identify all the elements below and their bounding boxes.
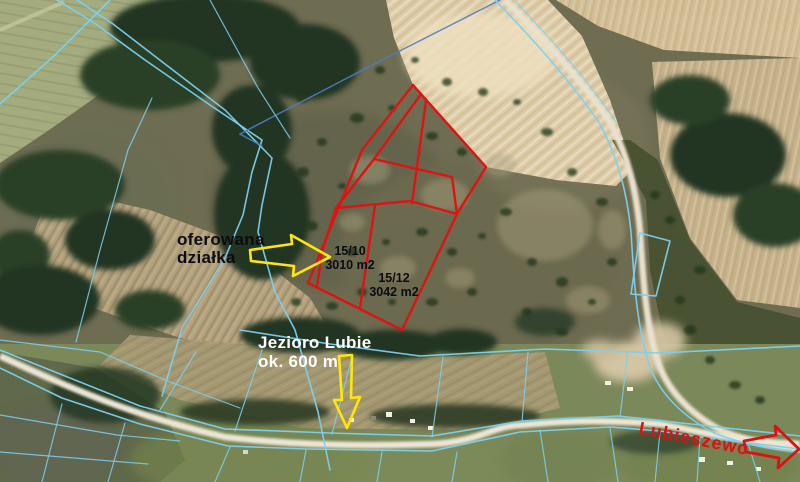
satellite-map-canvas [0,0,800,482]
lake-distance: ok. 600 m [258,353,371,372]
offered-plot-label-line2: działka [177,249,265,267]
parcel-15-10-area: 3010 m2 [318,259,382,273]
parcel-15-12-area: 3042 m2 [360,286,428,300]
parcel-15-12-id: 15/12 [360,272,428,286]
parcel-15-12-label: 15/12 3042 m2 [360,272,428,299]
parcel-15-10-id: 15/10 [318,245,382,259]
annotated-satellite-map: oferowana działka 15/10 3010 m2 15/12 30… [0,0,800,482]
offered-plot-label: oferowana działka [177,231,265,266]
offered-plot-label-line1: oferowana [177,231,265,249]
lake-distance-label: Jezioro Lubie ok. 600 m [258,334,371,371]
lake-name: Jezioro Lubie [258,334,371,353]
parcel-15-10-label: 15/10 3010 m2 [318,245,382,272]
